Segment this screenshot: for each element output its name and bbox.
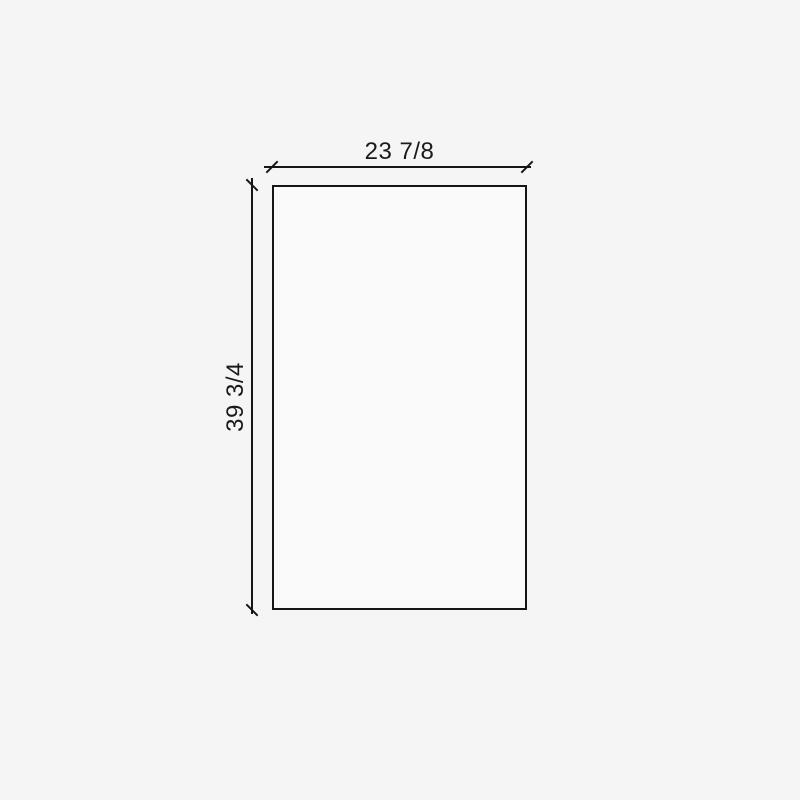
drawing-canvas: 23 7/8 39 3/4 [0,0,800,800]
height-dimension-line [251,178,253,614]
width-dimension-label: 23 7/8 [272,140,527,164]
width-dimension-line [264,166,531,168]
panel-rectangle [272,185,527,610]
height-dimension-label: 39 3/4 [224,362,248,432]
